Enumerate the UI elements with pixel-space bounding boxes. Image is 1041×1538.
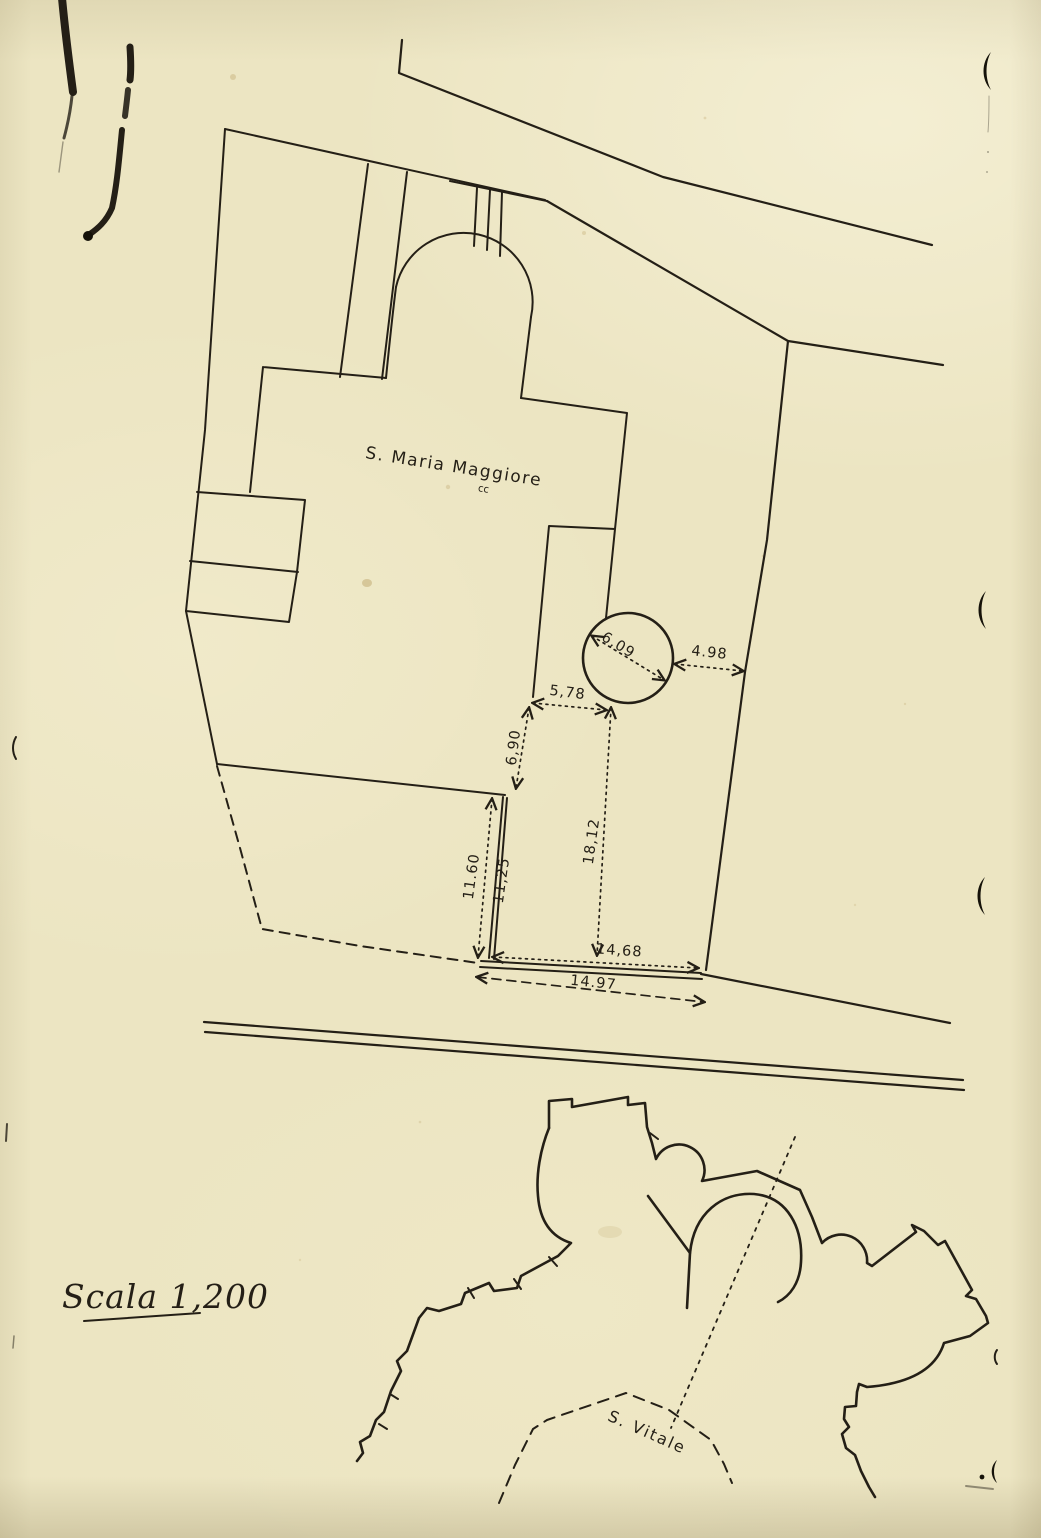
church-label-mark: cc bbox=[477, 483, 490, 496]
central-arch bbox=[690, 1194, 801, 1302]
dim-label-tower-to-east-boundary: 4.98 bbox=[691, 643, 729, 663]
scale-note-text: Scala 1,200 bbox=[62, 1277, 269, 1316]
lower-site-plan: S. Vitale bbox=[357, 1097, 988, 1503]
church-label: S. Maria Maggiore bbox=[364, 443, 544, 491]
dim-label-west-wall-outer: 11.60 bbox=[461, 852, 483, 900]
street-and-boundary-lines bbox=[217, 40, 950, 1023]
west-dashed-boundary bbox=[217, 766, 478, 963]
dim-line-court-top-width bbox=[533, 703, 606, 710]
nave-south-wall bbox=[217, 764, 505, 795]
step-wall bbox=[250, 367, 386, 492]
southwest-diagonal-wall bbox=[186, 611, 217, 764]
left-tower-and-east-wing bbox=[549, 1097, 988, 1497]
street-double-line bbox=[204, 1022, 964, 1090]
narthex-walls bbox=[340, 164, 547, 379]
left-apse-and-serrated-wall bbox=[357, 1128, 571, 1461]
facade-pier-lines bbox=[474, 188, 502, 256]
dim-label-south-outer: 14.97 bbox=[569, 973, 617, 994]
southeast-boundary-line bbox=[701, 974, 950, 1023]
north-wall bbox=[225, 129, 545, 200]
dim-label-court-depth: 18,12 bbox=[581, 817, 603, 865]
s-vitale-label: S. Vitale bbox=[605, 1406, 689, 1457]
dim-label-south-inner: 14,68 bbox=[596, 941, 644, 960]
ink-streak-artifacts bbox=[59, 0, 131, 241]
northeast-boundary-line bbox=[547, 201, 943, 365]
left-edge-marks bbox=[6, 737, 16, 1348]
north-road-line bbox=[399, 40, 932, 245]
east-chancel-walls bbox=[521, 398, 627, 697]
dim-line-west-wall-outer bbox=[478, 799, 492, 957]
dim-line-tower-to-east-boundary bbox=[675, 664, 743, 671]
dim-label-court-top-width: 5,78 bbox=[548, 683, 586, 703]
apse-arc bbox=[396, 233, 533, 317]
scale-note: Scala 1,200 bbox=[62, 1277, 269, 1321]
upper-site-plan: 6,09 4.98 5,78 6,90 11.60 11,25 18,12 14… bbox=[186, 40, 950, 1023]
scanned-plan-page: 6,09 4.98 5,78 6,90 11.60 11,25 18,12 14… bbox=[0, 0, 1041, 1538]
dim-label-tower-diameter: 6,09 bbox=[598, 629, 637, 661]
annex-rooms bbox=[186, 492, 305, 622]
apse-legs bbox=[386, 287, 531, 398]
paper-stains bbox=[230, 74, 906, 1261]
central-arch-leg bbox=[648, 1196, 690, 1308]
west-wall bbox=[186, 129, 225, 611]
dim-label-west-wall-inner: 11,25 bbox=[491, 856, 513, 904]
binding-hole-marks bbox=[966, 52, 997, 1489]
